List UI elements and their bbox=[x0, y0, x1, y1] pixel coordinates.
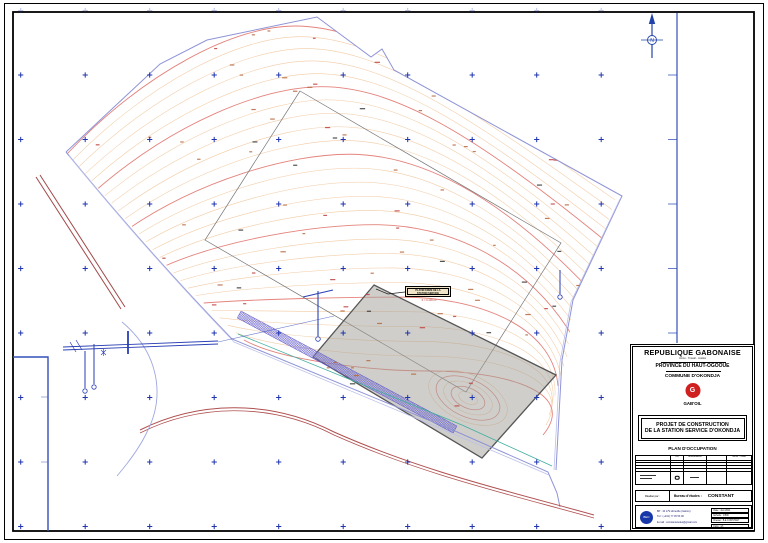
elevation-label-speck bbox=[522, 282, 527, 283]
elevation-label-speck bbox=[441, 189, 445, 190]
elevation-label-speck bbox=[438, 313, 443, 314]
elevation-label-speck bbox=[313, 84, 317, 85]
grid-cross bbox=[470, 201, 475, 206]
meta-author: Dressé : B.E CONSTANT bbox=[711, 518, 749, 523]
elevation-label-speck bbox=[420, 327, 425, 328]
contour-minor bbox=[135, 168, 585, 298]
grid-cross bbox=[147, 201, 152, 206]
elevation-label-speck bbox=[330, 279, 335, 280]
elevation-label-speck bbox=[180, 141, 183, 142]
elevation-label-speck bbox=[283, 204, 287, 205]
elevation-label-speck bbox=[212, 304, 217, 305]
platform-area-value: S = 6.400 m² bbox=[412, 299, 446, 302]
elevation-label-speck bbox=[366, 294, 370, 295]
elevation-label-speck bbox=[549, 159, 554, 160]
grid-cross bbox=[147, 266, 152, 271]
rev-col-visa: Noms - Visas bbox=[727, 456, 751, 460]
elevation-label-speck bbox=[468, 289, 473, 290]
grid-cross bbox=[147, 395, 152, 400]
drawing-title: PLAN D'OCCUPATION bbox=[631, 447, 754, 452]
grid-cross bbox=[534, 137, 539, 142]
commune-title: COMMUNE D'OKONDJA bbox=[631, 374, 754, 379]
north-arrow: N bbox=[641, 13, 663, 58]
margin-divider bbox=[668, 13, 677, 343]
gaboil-logo: G bbox=[685, 383, 700, 398]
elevation-label-speck bbox=[354, 375, 359, 376]
grid-cross bbox=[470, 524, 475, 529]
meta-scale: Echelle : 1/500 bbox=[711, 513, 749, 518]
grid-cross bbox=[276, 137, 281, 142]
grid-cross bbox=[341, 201, 346, 206]
revision-table: Ind Modifications Noms - Visas bbox=[635, 455, 752, 485]
country-motto: Union - Travail - Justice bbox=[631, 358, 754, 361]
elevation-label-speck bbox=[302, 233, 305, 234]
grid-cross bbox=[341, 137, 346, 142]
elevation-label-speck bbox=[366, 360, 370, 361]
elevation-label-speck bbox=[270, 118, 275, 119]
grid-cross bbox=[534, 524, 539, 529]
grid-cross bbox=[212, 395, 217, 400]
elevation-label-speck bbox=[333, 362, 336, 363]
made-by-label: Réalisé par : bbox=[636, 491, 670, 501]
elevation-label-speck bbox=[419, 110, 422, 111]
elevation-label-speck bbox=[251, 109, 255, 110]
grid-cross bbox=[276, 459, 281, 464]
elevation-label-speck bbox=[360, 108, 365, 109]
elevation-label-speck bbox=[430, 239, 434, 240]
elevation-label-speck bbox=[576, 285, 579, 286]
contact-email: E-mail : constantetudes@gmail.com bbox=[657, 520, 697, 525]
grid-cross bbox=[341, 72, 346, 77]
grid-cross bbox=[470, 459, 475, 464]
elevation-label-speck bbox=[473, 151, 476, 152]
contour-minor bbox=[107, 113, 597, 258]
north-arrow-label: N bbox=[650, 38, 654, 44]
grid-cross bbox=[470, 72, 475, 77]
elevation-label-speck bbox=[395, 210, 400, 211]
grid-cross bbox=[341, 459, 346, 464]
grid-cross bbox=[599, 459, 604, 464]
grid-cross bbox=[405, 137, 410, 142]
elevation-label-speck bbox=[218, 284, 223, 285]
elevation-label-speck bbox=[197, 159, 200, 160]
grid-cross bbox=[212, 201, 217, 206]
grid-cross bbox=[405, 266, 410, 271]
elevation-label-speck bbox=[327, 367, 330, 368]
road-lower-curve bbox=[140, 408, 594, 518]
elevation-label-speck bbox=[323, 215, 327, 216]
grid-cross bbox=[341, 266, 346, 271]
elevation-label-speck bbox=[396, 227, 399, 228]
grid-cross bbox=[147, 137, 152, 142]
elevation-label-speck bbox=[280, 251, 285, 252]
elevation-label-speck bbox=[432, 95, 436, 96]
elevation-label-speck bbox=[565, 204, 569, 205]
elevation-label-speck bbox=[238, 229, 243, 230]
elevation-label-speck bbox=[440, 261, 445, 262]
grid-cross bbox=[18, 137, 23, 142]
grid-cross bbox=[147, 330, 152, 335]
meta-folio: Folio : 1/1 bbox=[711, 524, 749, 529]
grid-cross bbox=[18, 524, 23, 529]
elevation-label-speck bbox=[243, 303, 246, 304]
elevation-label-speck bbox=[377, 323, 382, 324]
elevation-label-speck bbox=[375, 62, 380, 63]
elevation-label-speck bbox=[96, 144, 100, 145]
grid-cross bbox=[212, 524, 217, 529]
rev-col-ind: Ind bbox=[671, 456, 684, 460]
elevation-label-speck bbox=[469, 383, 473, 384]
elevation-label-speck bbox=[252, 34, 255, 35]
grid-cross bbox=[534, 330, 539, 335]
elevation-label-speck bbox=[252, 272, 255, 273]
grid-cross bbox=[534, 72, 539, 77]
elevation-label-speck bbox=[240, 74, 243, 75]
contour-minor bbox=[143, 182, 582, 307]
elevation-label-speck bbox=[475, 300, 480, 301]
grid-cross bbox=[599, 395, 604, 400]
elevation-label-speck bbox=[537, 184, 542, 185]
elevation-label-speck bbox=[367, 311, 371, 312]
adjacent-parcel bbox=[13, 357, 48, 531]
elevation-label-speck bbox=[464, 146, 468, 147]
elevation-label-speck bbox=[351, 367, 354, 368]
elevation-label-speck bbox=[525, 334, 528, 335]
elevation-label-speck bbox=[400, 251, 404, 252]
elevation-label-speck bbox=[344, 306, 349, 307]
grid-cross bbox=[18, 395, 23, 400]
grid-cross bbox=[599, 201, 604, 206]
contour-minor bbox=[82, 61, 609, 219]
elevation-label-speck bbox=[293, 165, 297, 166]
contact-box: BEC BP : 10 179 Libreville (Gabon) Tél :… bbox=[635, 505, 752, 528]
elevation-label-speck bbox=[544, 308, 548, 309]
grid-cross bbox=[147, 72, 152, 77]
elevation-label-speck bbox=[214, 48, 217, 49]
elevation-label-speck bbox=[307, 87, 312, 88]
grid-cross bbox=[599, 72, 604, 77]
project-title-box: PROJET DE CONSTRUCTION DE LA STATION SER… bbox=[638, 415, 747, 441]
road-upper-left bbox=[36, 175, 125, 309]
grid-cross bbox=[599, 266, 604, 271]
elevation-label-speck bbox=[282, 77, 287, 78]
elevation-label-speck bbox=[342, 134, 346, 135]
platform-label-box: PLATEFORME DE LA STATION SERVICE bbox=[405, 286, 451, 297]
grid-cross bbox=[147, 524, 152, 529]
grid-cross bbox=[534, 201, 539, 206]
grid-cross bbox=[83, 330, 88, 335]
grid-cross bbox=[212, 266, 217, 271]
province-title: PROVINCE DU HAUT-OGOOUE bbox=[631, 364, 754, 369]
grid-cross bbox=[470, 266, 475, 271]
grid-cross bbox=[83, 266, 88, 271]
grid-cross bbox=[534, 266, 539, 271]
grid-cross bbox=[212, 72, 217, 77]
grid-cross bbox=[276, 524, 281, 529]
meta-column: Date : Juin 2021 Echelle : 1/500 Dressé … bbox=[711, 508, 749, 529]
grid-cross bbox=[83, 72, 88, 77]
grid-cross bbox=[599, 330, 604, 335]
elevation-label-speck bbox=[411, 374, 416, 375]
grid-cross bbox=[18, 266, 23, 271]
grid-cross bbox=[147, 459, 152, 464]
title-block: REPUBLIQUE GABONAISE Union - Travail - J… bbox=[630, 344, 755, 531]
drawing-sheet: N PLATEFORME DE LA STATION SERVICE S = 6… bbox=[0, 0, 768, 543]
elevation-label-speck bbox=[325, 127, 330, 128]
grid-cross bbox=[18, 330, 23, 335]
made-by-row: Réalisé par : Bureau d'études : CONSTANT bbox=[635, 490, 752, 502]
grid-cross-marks bbox=[18, 8, 604, 529]
grid-cross bbox=[83, 524, 88, 529]
office-name: CONSTANT bbox=[708, 494, 734, 499]
grid-cross bbox=[18, 201, 23, 206]
grid-cross bbox=[405, 201, 410, 206]
elevation-label-speck bbox=[525, 314, 530, 315]
grid-cross bbox=[276, 266, 281, 271]
meta-date: Date : Juin 2021 bbox=[711, 508, 749, 513]
elevation-label-speck bbox=[371, 273, 374, 274]
elevation-label-speck bbox=[340, 310, 344, 311]
country-title: REPUBLIQUE GABONAISE bbox=[631, 349, 754, 357]
rev-col-modif: Modifications bbox=[684, 456, 707, 460]
elevation-label-speck bbox=[333, 137, 337, 138]
grid-cross bbox=[83, 395, 88, 400]
parcel-boundary bbox=[66, 17, 622, 507]
grid-cross bbox=[18, 72, 23, 77]
elevation-label-speck bbox=[249, 151, 252, 152]
divider bbox=[666, 371, 721, 372]
grid-cross bbox=[18, 459, 23, 464]
elevation-label-speck bbox=[182, 224, 186, 225]
elevation-label-speck bbox=[455, 405, 460, 406]
elevation-label-speck bbox=[551, 203, 555, 204]
grid-cross bbox=[599, 137, 604, 142]
rev-index-mark bbox=[675, 475, 680, 480]
elevation-label-speck bbox=[493, 245, 496, 246]
contour-minor bbox=[70, 37, 615, 200]
grid-cross bbox=[599, 524, 604, 529]
office-label: Bureau d'études : bbox=[674, 494, 702, 498]
grid-cross bbox=[212, 330, 217, 335]
elevation-label-speck bbox=[545, 218, 550, 219]
grid-cross bbox=[405, 524, 410, 529]
platform-label-line2: STATION SERVICE bbox=[408, 292, 448, 295]
company-name: GAB'OIL bbox=[631, 402, 754, 407]
elevation-label-speck bbox=[394, 169, 398, 170]
grid-cross bbox=[276, 72, 281, 77]
grid-cross bbox=[341, 395, 346, 400]
grid-cross bbox=[83, 201, 88, 206]
elevation-label-speck bbox=[293, 91, 297, 92]
elevation-label-speck bbox=[486, 332, 491, 333]
elevation-label-speck bbox=[453, 316, 456, 317]
grid-cross bbox=[276, 395, 281, 400]
project-box-inner-border bbox=[641, 418, 745, 439]
elevation-label-speck bbox=[453, 144, 456, 145]
elevation-label-speck bbox=[552, 306, 556, 307]
rev-note-cell bbox=[636, 472, 671, 484]
elevation-label-speck bbox=[230, 64, 235, 65]
bureau-logo: BEC bbox=[640, 511, 653, 524]
grid-cross bbox=[341, 524, 346, 529]
elevation-label-speck bbox=[313, 38, 316, 39]
contour-minor bbox=[121, 140, 591, 278]
elevation-label-speck bbox=[268, 30, 271, 31]
grid-cross bbox=[83, 459, 88, 464]
elevation-label-speck bbox=[557, 251, 561, 252]
elevation-label-speck bbox=[162, 258, 165, 259]
elevation-label-speck bbox=[237, 287, 242, 288]
grid-cross bbox=[212, 459, 217, 464]
elevation-label-speck bbox=[252, 141, 257, 142]
elevation-label-speck bbox=[350, 383, 355, 384]
